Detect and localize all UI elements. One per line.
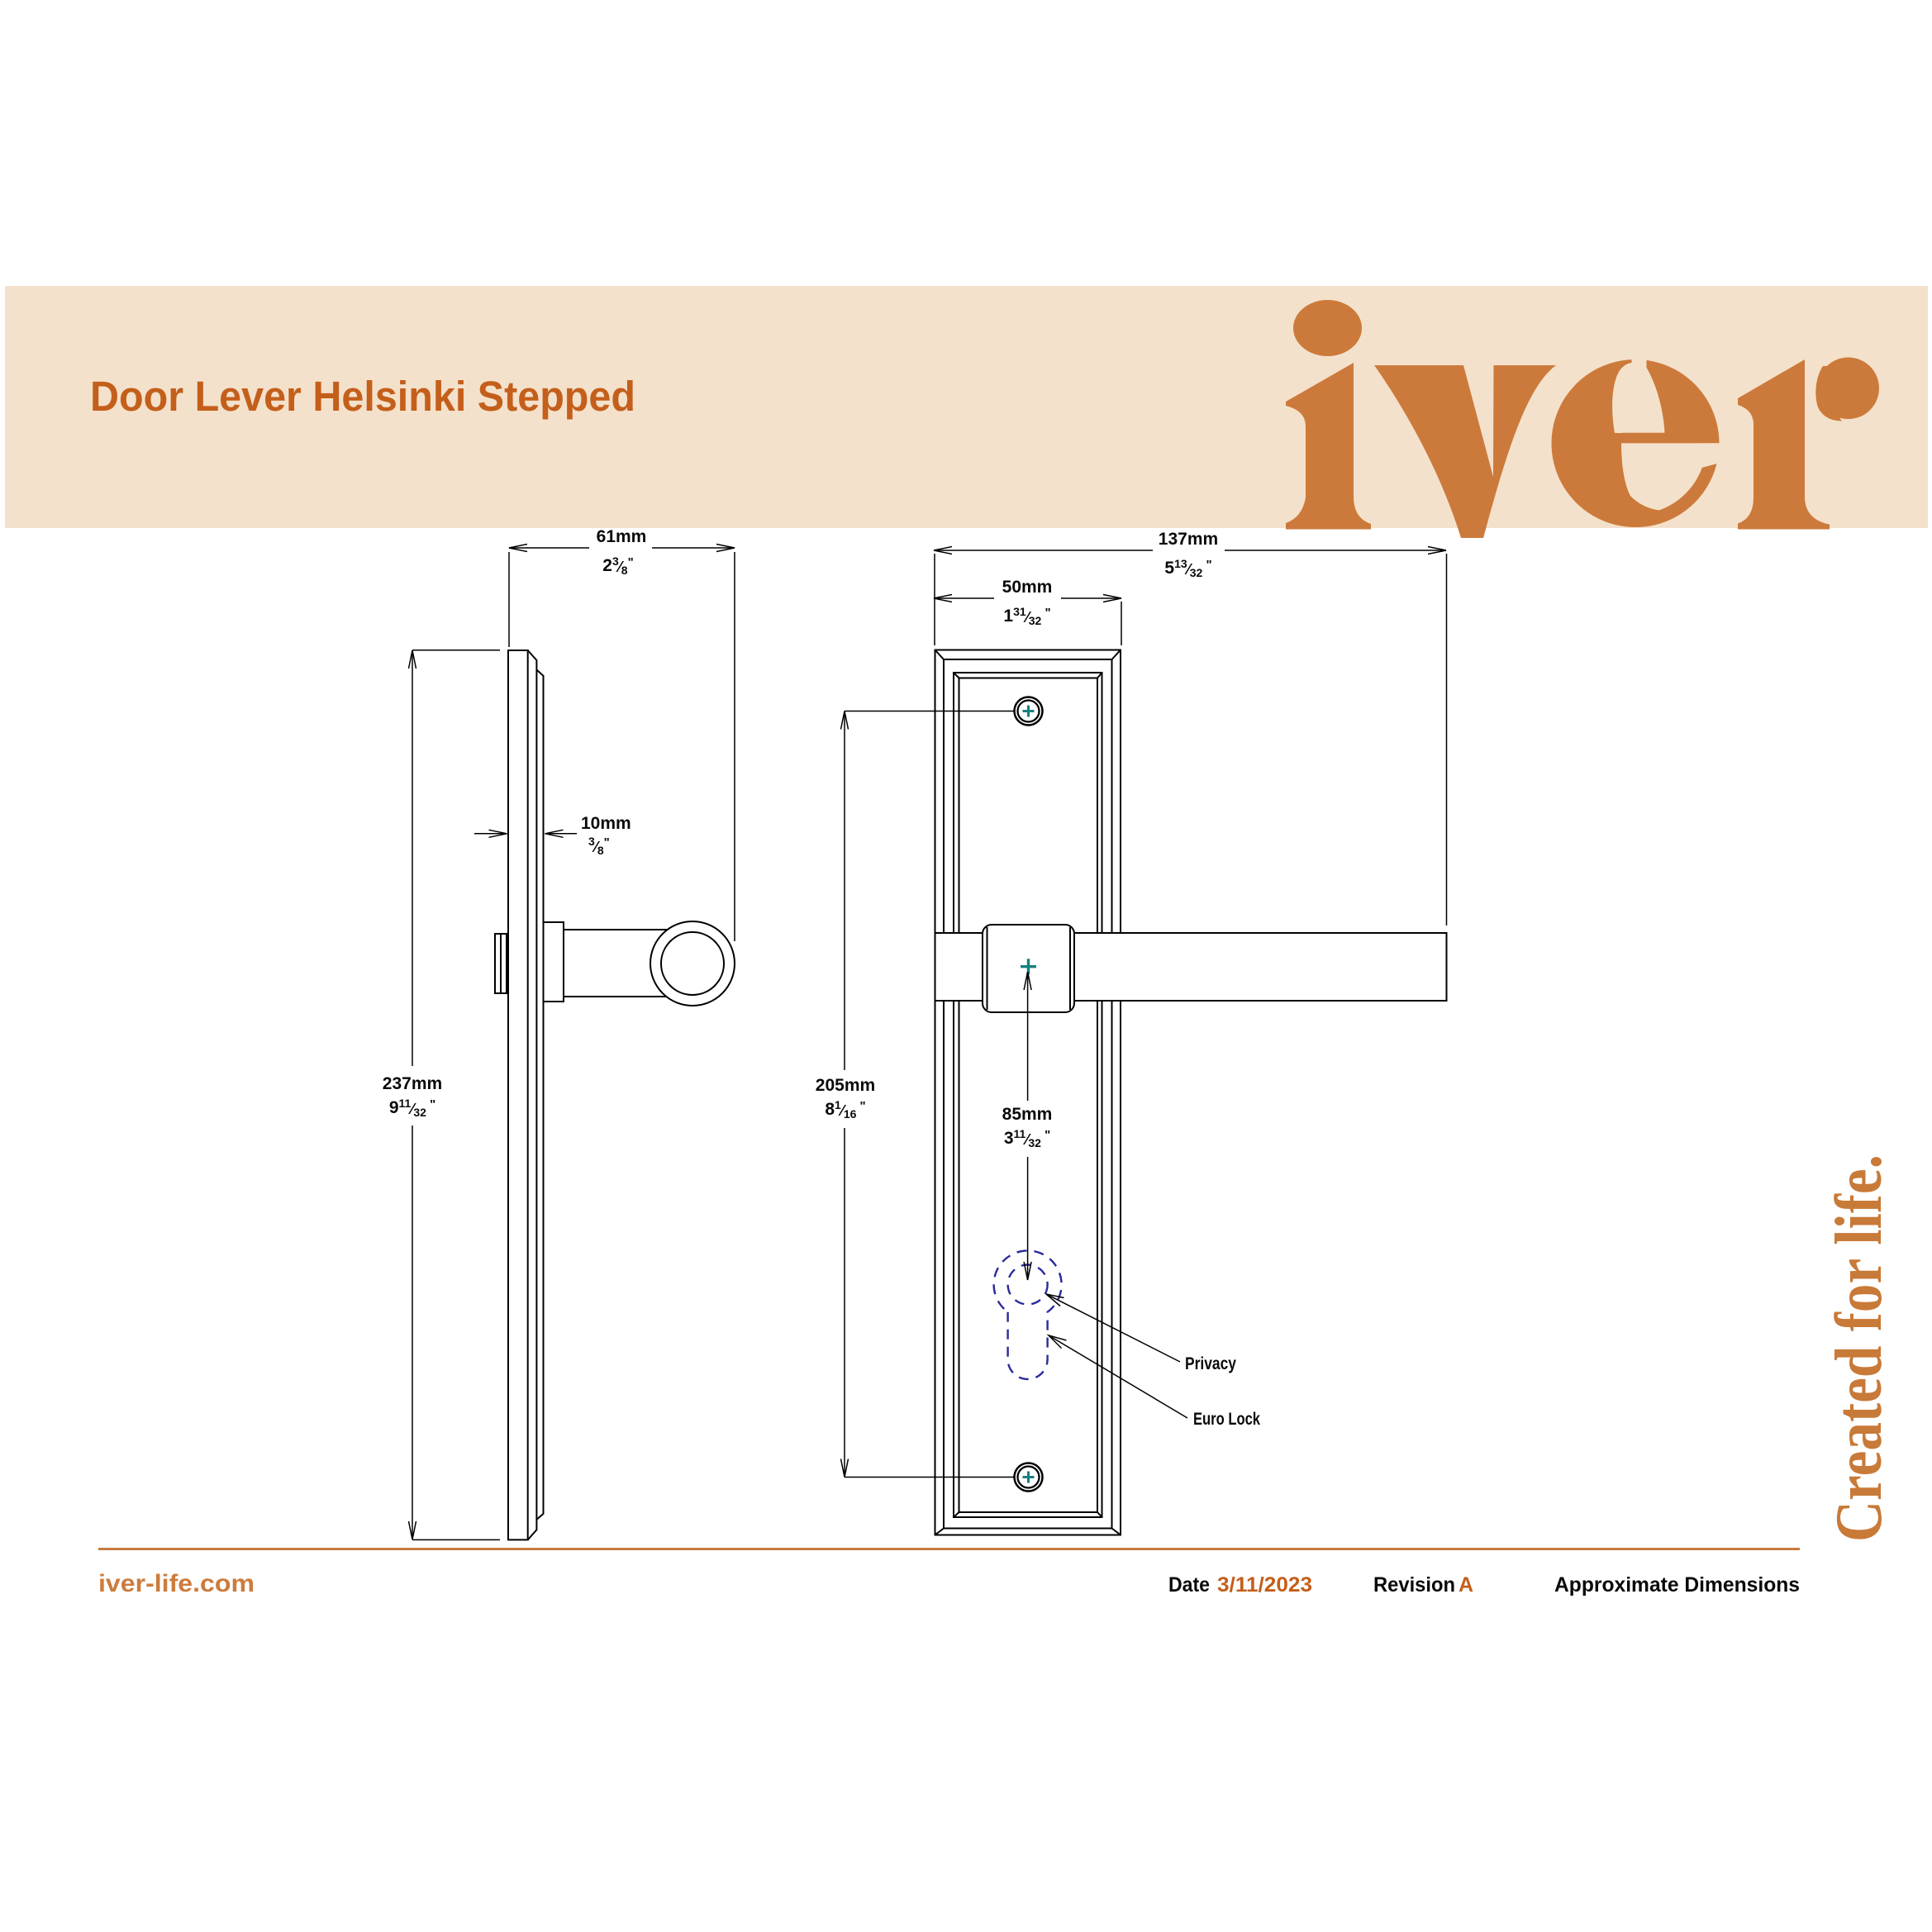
svg-text:61mm: 61mm: [597, 527, 647, 546]
svg-text:10mm: 10mm: [581, 814, 631, 833]
svg-text:Approximate Dimensions: Approximate Dimensions: [1554, 1573, 1800, 1597]
svg-text:Privacy: Privacy: [1185, 1354, 1236, 1373]
svg-text:205mm: 205mm: [816, 1076, 875, 1095]
svg-text:Door Lever Helsinki Stepped: Door Lever Helsinki Stepped: [90, 373, 635, 420]
svg-text:Euro Lock: Euro Lock: [1193, 1410, 1260, 1429]
svg-text:137mm: 137mm: [1159, 530, 1218, 549]
svg-text:Created for life.: Created for life.: [1823, 1154, 1896, 1542]
svg-text:3/11/2023: 3/11/2023: [1217, 1573, 1312, 1597]
svg-text:Revision: Revision: [1373, 1573, 1455, 1597]
svg-text:iver-life.com: iver-life.com: [98, 1570, 255, 1597]
svg-text:Date: Date: [1168, 1573, 1210, 1597]
svg-text:A: A: [1459, 1573, 1473, 1597]
svg-text:50mm: 50mm: [1002, 578, 1053, 597]
svg-text:85mm: 85mm: [1002, 1105, 1053, 1124]
svg-text:237mm: 237mm: [383, 1074, 442, 1093]
